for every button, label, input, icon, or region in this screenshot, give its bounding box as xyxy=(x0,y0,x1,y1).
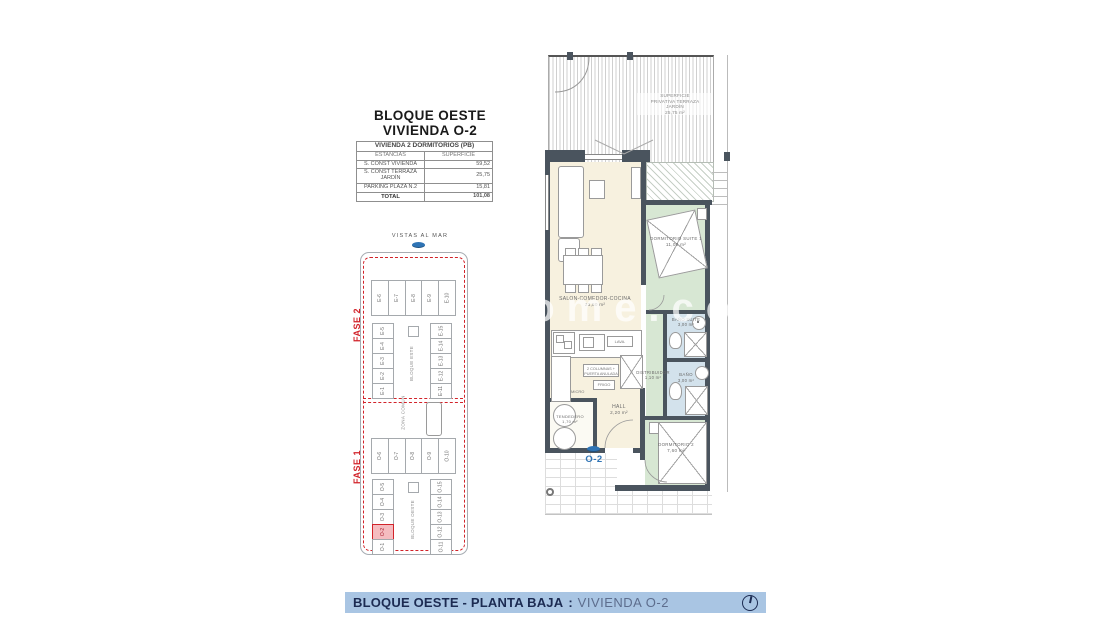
table-row: S. CONST VIVIENDA 59,52 xyxy=(357,160,493,169)
unit-label: O-2 xyxy=(380,528,386,536)
site-unit: E-3 xyxy=(372,353,394,369)
wall xyxy=(646,310,710,314)
site-unit: E-13 xyxy=(430,353,452,369)
unit-label: O-6 xyxy=(377,452,383,460)
wall xyxy=(633,448,645,453)
room-area: 1,70 m² xyxy=(547,419,593,424)
dormitorio2-label: DORMITORIO 2 7,60 m² xyxy=(645,442,707,453)
site-unit: E-2 xyxy=(372,368,394,384)
wall xyxy=(641,200,712,205)
footer-banner: BLOQUE OESTE - PLANTA BAJA : VIVIENDA O-… xyxy=(345,592,766,613)
unit-label: O-3 xyxy=(380,513,386,521)
bloque-oeste-top-row: O-6 O-7 O-8 O-9 O-10 xyxy=(372,438,456,474)
unit-label: O-15 xyxy=(438,481,444,492)
sea-view-icon xyxy=(412,242,425,248)
floor-plan: SUPERFICIE PRIVATIVA TERRAZA JARDÍN 25,7… xyxy=(545,48,730,522)
bloque-este-left-col: E-5 E-4 E-3 E-2 E-1 xyxy=(372,324,394,399)
unit-label: E-8 xyxy=(410,294,416,302)
footer-separator: : xyxy=(568,595,572,610)
wall xyxy=(641,150,646,205)
fence-post xyxy=(627,52,633,60)
site-unit: O-4 xyxy=(372,494,394,510)
site-unit: E-6 xyxy=(371,280,389,316)
unit-label: E-12 xyxy=(438,371,444,382)
room-area: 3,00 m² xyxy=(667,378,705,383)
bloque-oeste-right-col: O-15 O-14 O-13 O-12 O-11 xyxy=(430,480,452,555)
doc-title-line1: BLOQUE OESTE xyxy=(340,108,520,123)
shower xyxy=(685,386,708,415)
chair xyxy=(565,284,576,293)
room-distribuidor xyxy=(646,310,663,416)
site-unit: E-14 xyxy=(430,338,452,354)
surface-table-header: VIVIENDA 2 DORMITORIOS (PB) xyxy=(357,142,493,152)
site-unit: O-6 xyxy=(371,438,389,474)
wall xyxy=(640,416,710,420)
site-unit: O-14 xyxy=(430,494,452,510)
bloque-este-right-col: E-15 E-14 E-13 E-12 E-11 xyxy=(430,324,452,399)
entrance-icon xyxy=(587,446,600,452)
unit-label: E-13 xyxy=(438,356,444,367)
unit-label: O-7 xyxy=(394,452,400,460)
unit-label: E-2 xyxy=(380,372,386,380)
room-hall xyxy=(597,388,640,448)
nightstand xyxy=(697,208,707,220)
site-unit: O-15 xyxy=(430,479,452,495)
lava-label: LAVA. xyxy=(607,336,633,347)
table-row-total: TOTAL 101,08 xyxy=(357,192,493,201)
unit-label: E-4 xyxy=(380,342,386,350)
fase2-label: FASE 2 xyxy=(352,305,362,345)
plot-boundary-line xyxy=(727,55,728,492)
zona-comun-label: ZONA COMUN xyxy=(401,386,406,440)
hall-label: HALL 2,20 m² xyxy=(601,404,637,416)
wall xyxy=(615,485,710,491)
drain-icon xyxy=(546,488,554,496)
phase-divider-line xyxy=(363,402,463,403)
wall xyxy=(640,388,645,416)
fase1-label: FASE 1 xyxy=(352,447,362,487)
site-unit: O-9 xyxy=(421,438,439,474)
bloque-oeste-label-wrap: BLOQUE OESTE xyxy=(394,496,430,542)
surface-table: VIVIENDA 2 DORMITORIOS (PB) ESTANCIAS SU… xyxy=(356,141,493,202)
site-unit: O-7 xyxy=(388,438,406,474)
wall xyxy=(593,402,597,448)
site-unit: O-10 xyxy=(438,438,456,474)
room-area: 7,60 m² xyxy=(645,448,707,454)
site-unit: E-15 xyxy=(430,323,452,339)
col-estancias: ESTANCIAS xyxy=(357,151,425,160)
frigo-label: FRIGO xyxy=(593,380,615,390)
site-plan: FASE 2 FASE 1 E-6 E-7 E-8 E-9 E-10 E-5 E… xyxy=(360,252,468,555)
tv-unit xyxy=(589,180,605,199)
estancia-value: 15,81 xyxy=(425,183,493,192)
unit-label: O-9 xyxy=(427,452,433,460)
shower xyxy=(684,332,707,357)
wall xyxy=(641,205,646,285)
dining-table xyxy=(563,255,603,285)
terrace-label: SUPERFICIE PRIVATIVA TERRAZA JARDÍN 25,7… xyxy=(637,93,713,115)
columnas-label: 2 COLUMNAS + PUERTA ANULADA xyxy=(583,364,619,377)
unit-label: E-15 xyxy=(438,326,444,337)
site-unit: E-5 xyxy=(372,323,394,339)
bano-suite-label: BAÑO SUITE 3,00 m² xyxy=(666,317,706,328)
rear-paving xyxy=(617,491,712,514)
unit-label: O-11 xyxy=(438,542,444,553)
site-unit: O-8 xyxy=(405,438,423,474)
estancia-name: S. CONST VIVIENDA xyxy=(357,160,425,169)
site-unit: O-3 xyxy=(372,509,394,525)
estancia-name: S. CONST TERRAZA JARDÍN xyxy=(357,169,425,184)
kitchen-cabinet xyxy=(551,356,571,402)
micro-label: MICRO xyxy=(571,389,591,394)
window xyxy=(545,175,549,230)
unit-label: E-10 xyxy=(444,293,450,304)
unit-label: O-10 xyxy=(444,450,450,461)
toilet xyxy=(669,332,682,349)
site-unit: E-8 xyxy=(405,280,423,316)
hob-burner xyxy=(556,335,564,343)
site-unit: O-1 xyxy=(372,539,394,555)
doc-title-block: BLOQUE OESTE VIVIENDA O-2 xyxy=(340,108,520,138)
unit-label: O-13 xyxy=(438,511,444,522)
room-area: 2,20 m² xyxy=(601,410,637,416)
site-unit: E-4 xyxy=(372,338,394,354)
unit-label: E-3 xyxy=(380,357,386,365)
estancia-name: PARKING PLAZA N.2 xyxy=(357,183,425,192)
col-superficie: SUPERFICIE xyxy=(425,151,493,160)
estancia-value: 59,52 xyxy=(425,160,493,169)
unit-label: E-5 xyxy=(380,327,386,335)
unit-label: E-11 xyxy=(438,386,444,396)
doc-title-line2: VIVIENDA O-2 xyxy=(340,123,520,138)
wall xyxy=(548,150,585,162)
car-icon xyxy=(426,402,442,436)
salon-label: SALON-COMEDOR-COCINA 23,50 m² xyxy=(551,296,639,308)
wall xyxy=(667,358,707,362)
bloque-este-top-row: E-6 E-7 E-8 E-9 E-10 xyxy=(372,280,456,316)
site-unit: E-12 xyxy=(430,368,452,384)
window xyxy=(585,154,622,160)
chair xyxy=(591,284,602,293)
bloque-oeste-left-col: O-5 O-4 O-3 O-2 O-1 xyxy=(372,480,394,555)
boundary-pillar xyxy=(724,152,730,161)
site-unit: E-11 xyxy=(430,383,452,399)
unit-label: E-14 xyxy=(438,341,444,352)
fence-post xyxy=(567,52,573,60)
hob-burner xyxy=(564,341,572,349)
unit-label: E-1 xyxy=(380,387,386,395)
tendedero-label: TENDEDERO 1,70 m² xyxy=(547,414,593,424)
site-unit: O-12 xyxy=(430,524,452,540)
unit-label: O-8 xyxy=(410,452,416,460)
suite-label: DORMITORIO SUITE 1 11,00 m² xyxy=(647,236,705,247)
unit-label: O-4 xyxy=(380,498,386,506)
room-name: DORMITORIO SUITE 1 xyxy=(647,236,705,242)
unit-label: E-9 xyxy=(427,294,433,302)
north-compass-icon xyxy=(742,595,758,611)
site-unit-highlighted: O-2 xyxy=(372,524,394,540)
total-value: 101,08 xyxy=(425,192,493,201)
site-unit: O-5 xyxy=(372,479,394,495)
vistas-al-mar-label: VISTAS AL MAR xyxy=(340,233,500,239)
sofa xyxy=(558,166,584,238)
unit-label: E-6 xyxy=(377,294,383,302)
footer-title-bold: BLOQUE OESTE - PLANTA BAJA xyxy=(353,595,563,610)
dryer xyxy=(553,427,576,450)
unit-label: E-7 xyxy=(394,294,400,302)
bloque-oeste-label: BLOQUE OESTE xyxy=(410,500,415,539)
terrace-label-l4: 25,75 m² xyxy=(637,110,713,116)
footer-title-regular: VIVIENDA O-2 xyxy=(578,595,669,610)
wall xyxy=(640,420,645,460)
site-unit: O-11 xyxy=(430,539,452,555)
estancia-value: 25,75 xyxy=(425,169,493,184)
unit-label: O-1 xyxy=(380,543,386,551)
room-area: 11,00 m² xyxy=(647,242,705,248)
site-unit: O-13 xyxy=(430,509,452,525)
unit-label: O-12 xyxy=(438,526,444,537)
suite-pergola xyxy=(646,162,714,202)
sink-bowl xyxy=(583,337,594,348)
unit-entrance-label: O-2 xyxy=(581,454,607,465)
unit-label: O-5 xyxy=(380,483,386,491)
unit-label: O-14 xyxy=(438,496,444,507)
site-unit: E-9 xyxy=(421,280,439,316)
table-row: PARKING PLAZA N.2 15,81 xyxy=(357,183,493,192)
site-unit: E-1 xyxy=(372,383,394,399)
bloque-oeste-core xyxy=(408,482,419,493)
toilet xyxy=(669,382,682,400)
bloque-este-label: BLOQUE ESTE xyxy=(410,345,415,380)
room-area: 3,00 m² xyxy=(666,322,706,327)
site-unit: E-7 xyxy=(388,280,406,316)
room-area: 23,50 m² xyxy=(551,302,639,308)
floorplan-page: BLOQUE OESTE VIVIENDA O-2 VIVIENDA 2 DOR… xyxy=(0,0,1110,626)
chair xyxy=(578,284,589,293)
plot-bottom-line xyxy=(545,514,712,515)
cabinet xyxy=(631,167,641,199)
total-label: TOTAL xyxy=(357,192,425,201)
bloque-este-label-wrap: BLOQUE ESTE xyxy=(394,340,430,386)
exterior-steps xyxy=(712,165,727,205)
bano-label: BAÑO 3,00 m² xyxy=(667,372,705,383)
table-row: S. CONST TERRAZA JARDÍN 25,75 xyxy=(357,169,493,184)
bloque-este-core xyxy=(408,326,419,337)
site-unit: E-10 xyxy=(438,280,456,316)
